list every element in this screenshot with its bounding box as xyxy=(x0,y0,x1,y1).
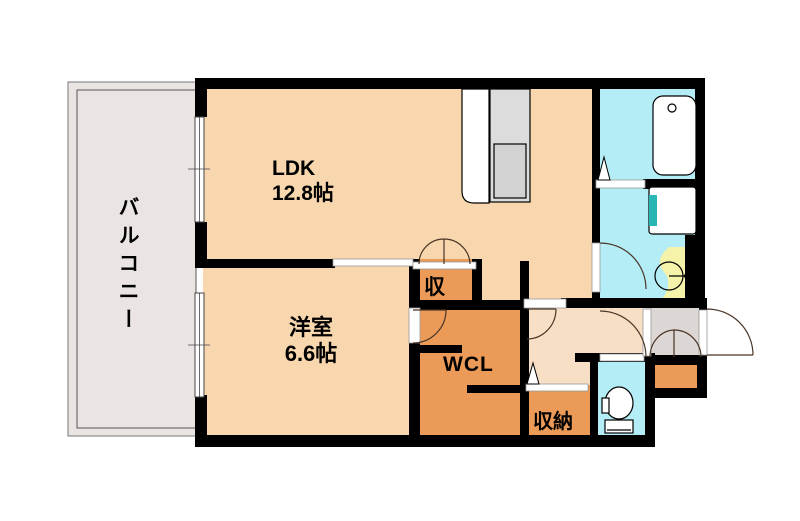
hall-door-track xyxy=(524,299,566,308)
closet-label: 収 xyxy=(424,271,445,301)
wcl-doorway xyxy=(409,308,420,343)
storage-door-track xyxy=(526,384,588,391)
toilet-door-track xyxy=(600,354,644,361)
sliding-opening-ldk-western xyxy=(333,259,413,266)
western-room-size: 6.6帖 xyxy=(230,341,392,367)
kitchen-counter-icon xyxy=(462,89,530,203)
balcony-label: バルコニー xyxy=(112,196,142,336)
ldk-size: 12.8帖 xyxy=(272,181,334,206)
room-entrance xyxy=(645,305,705,358)
ldk-name: LDK xyxy=(272,156,334,181)
floor-plan: バルコニー LDK 12.8帖 洋室 6.6帖 収 WCL 収納 xyxy=(0,0,800,521)
ldk-label: LDK 12.8帖 xyxy=(272,156,334,206)
entrance-doorway xyxy=(643,309,651,356)
bathtub-icon xyxy=(653,96,696,175)
western-room-label: 洋室 6.6帖 xyxy=(230,315,392,368)
front-door-swing-icon xyxy=(707,309,753,355)
washing-machine-pan-icon xyxy=(649,187,696,234)
bathroom-door-track xyxy=(596,180,645,188)
western-room-name: 洋室 xyxy=(230,315,392,341)
washroom-doorway xyxy=(592,243,600,292)
storage-label: 収納 xyxy=(533,405,573,434)
walk-in-closet-label: WCL xyxy=(443,353,494,377)
